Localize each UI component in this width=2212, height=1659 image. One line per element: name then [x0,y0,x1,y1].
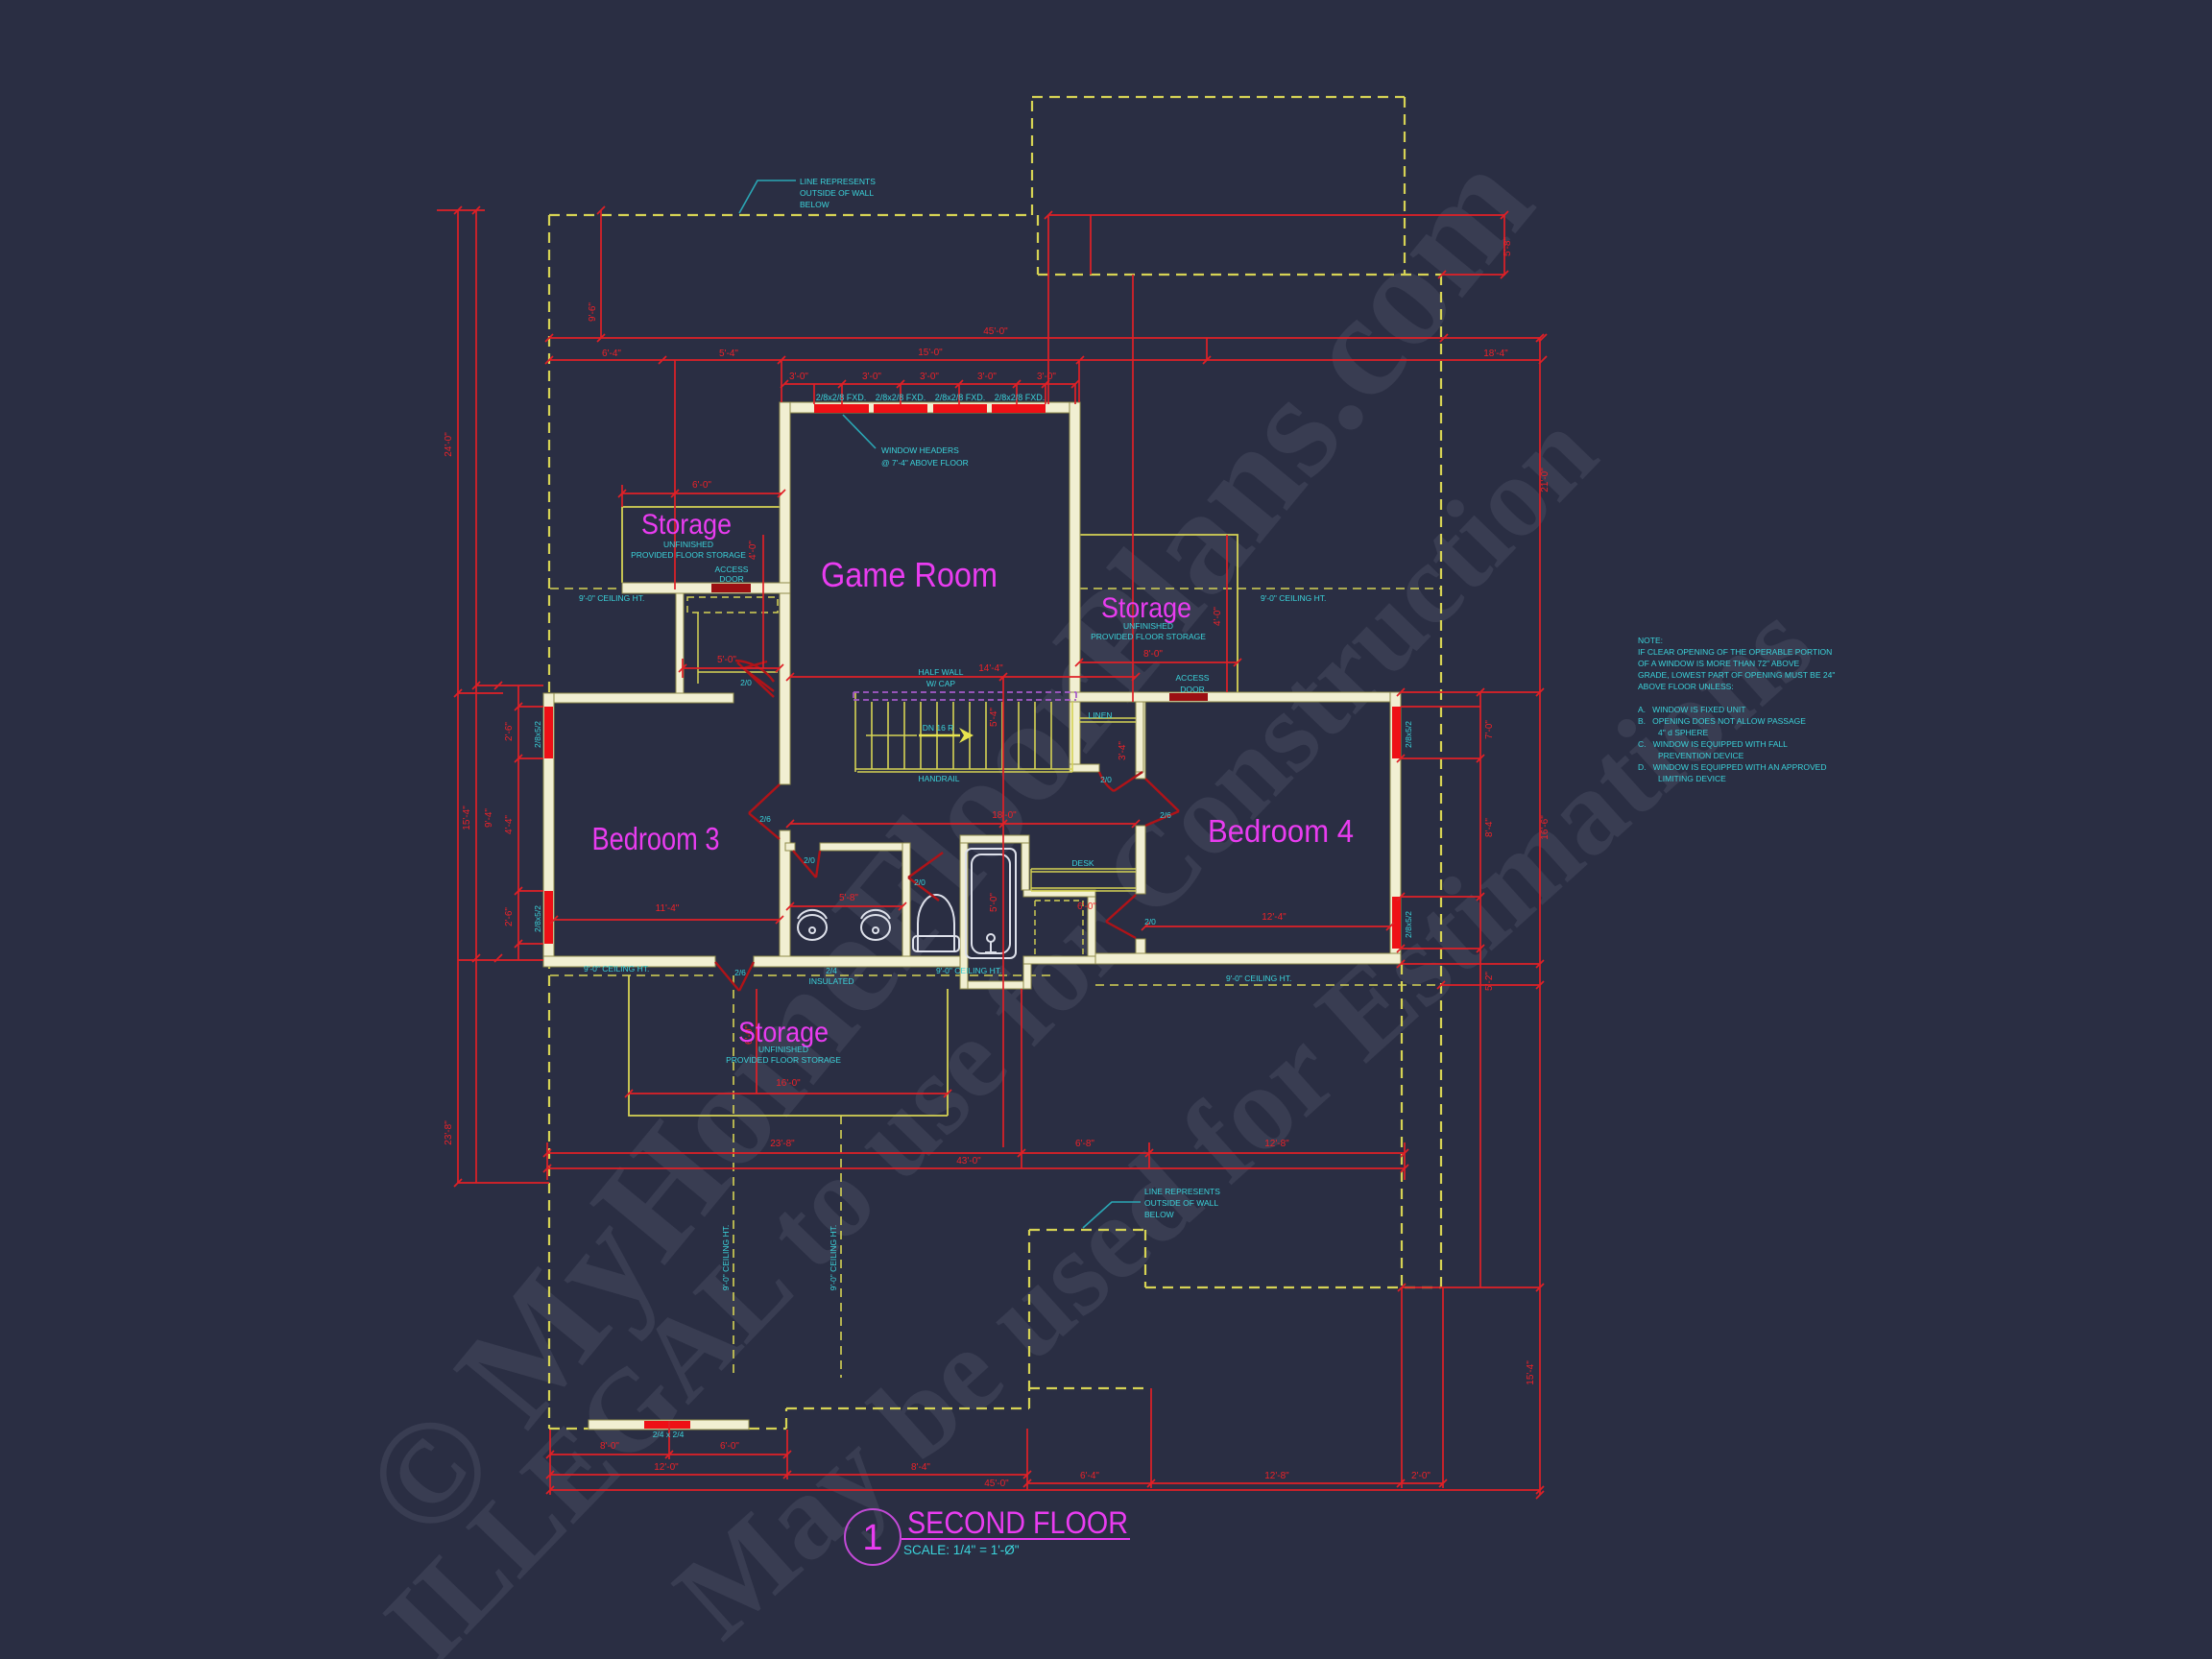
svg-text:BELOW: BELOW [800,200,829,209]
svg-text:PREVENTION DEVICE: PREVENTION DEVICE [1658,751,1744,760]
svg-text:Bedroom 3: Bedroom 3 [592,821,720,856]
svg-text:2'-6": 2'-6" [504,907,515,926]
svg-text:12'-8": 12'-8" [1264,1471,1289,1481]
svg-text:8'-4": 8'-4" [1484,818,1495,837]
svg-text:LINE REPRESENTS: LINE REPRESENTS [800,177,876,186]
svg-text:9'-0" CEILING HT.: 9'-0" CEILING HT. [936,966,1001,975]
svg-text:5'-2": 5'-2" [1484,972,1495,991]
svg-text:9'-6": 9'-6" [588,302,598,322]
svg-text:3'-0": 3'-0" [1037,372,1056,382]
svg-text:2/4: 2/4 [826,966,837,975]
svg-text:15'-0": 15'-0" [918,348,943,358]
svg-text:16'-0": 16'-0" [776,1078,801,1089]
svg-text:8'-0": 8'-0" [600,1441,619,1452]
svg-text:ACCESS: ACCESS [715,565,749,574]
svg-text:OUTSIDE OF WALL: OUTSIDE OF WALL [1144,1198,1218,1208]
svg-text:5'-0": 5'-0" [989,893,999,912]
svg-text:UNFINISHED: UNFINISHED [1123,621,1173,631]
svg-text:IF CLEAR OPENING OF THE OPERAB: IF CLEAR OPENING OF THE OPERABLE PORTION [1638,647,1832,657]
svg-text:2'-0": 2'-0" [1411,1471,1431,1481]
svg-text:8'-0": 8'-0" [1143,649,1163,660]
svg-text:6'-4": 6'-4" [1080,1471,1099,1481]
svg-text:UNFINISHED: UNFINISHED [663,540,713,549]
svg-text:3'-4": 3'-4" [1118,741,1128,760]
svg-text:2/0: 2/0 [1100,775,1112,784]
svg-text:2/8x2/8 FXD.: 2/8x2/8 FXD. [876,393,926,402]
svg-text:B. OPENING DOES NOT ALLOW PA: B. OPENING DOES NOT ALLOW PASSAGE [1638,716,1806,726]
svg-text:OF A WINDOW IS MORE THAN 72" A: OF A WINDOW IS MORE THAN 72" ABOVE [1638,659,1800,668]
svg-text:2'-6": 2'-6" [504,722,515,741]
svg-text:3'-0": 3'-0" [920,372,939,382]
svg-text:7'-0": 7'-0" [1484,720,1495,739]
svg-text:NOTE:: NOTE: [1638,636,1663,645]
svg-text:6'-4": 6'-4" [602,349,621,359]
svg-text:BELOW: BELOW [1144,1210,1174,1219]
svg-text:LIMITING DEVICE: LIMITING DEVICE [1658,774,1726,783]
svg-text:14'-4": 14'-4" [978,663,1003,674]
svg-text:11'-4": 11'-4" [656,903,680,914]
svg-text:5'-8": 5'-8" [839,893,858,903]
svg-text:2/8x2/8 FXD.: 2/8x2/8 FXD. [935,393,986,402]
svg-text:4'-0": 4'-0" [1213,607,1223,626]
svg-text:Game Room: Game Room [821,555,998,594]
svg-text:6'-0": 6'-0" [1077,902,1096,912]
svg-text:15'-4": 15'-4" [1526,1360,1536,1385]
svg-text:ABOVE FLOOR UNLESS:: ABOVE FLOOR UNLESS: [1638,682,1734,691]
svg-text:HANDRAIL: HANDRAIL [919,774,960,783]
svg-text:SECOND FLOOR: SECOND FLOOR [907,1505,1128,1540]
svg-text:Storage: Storage [1101,592,1191,624]
svg-text:5'-4": 5'-4" [989,708,999,727]
svg-text:18'-0": 18'-0" [992,810,1017,821]
svg-text:5'-8": 5'-8" [1503,237,1513,256]
svg-text:6'-0": 6'-0" [720,1441,739,1452]
svg-text:PROVIDED FLOOR STORAGE: PROVIDED FLOOR STORAGE [631,550,746,560]
svg-text:2/6: 2/6 [1160,810,1171,820]
svg-text:4'-0": 4'-0" [748,541,758,560]
svg-text:2/6: 2/6 [759,814,771,824]
svg-text:D. WINDOW IS EQUIPPED WITH A: D. WINDOW IS EQUIPPED WITH AN APPROVED [1638,762,1826,772]
svg-text:9'-4": 9'-4" [484,808,494,828]
svg-text:DESK: DESK [1071,858,1094,868]
svg-text:PROVIDED FLOOR STORAGE: PROVIDED FLOOR STORAGE [1091,632,1206,641]
svg-text:4" d SPHERE: 4" d SPHERE [1658,728,1708,737]
svg-text:8'-4": 8'-4" [911,1462,930,1473]
svg-text:PROVIDED FLOOR STORAGE: PROVIDED FLOOR STORAGE [726,1055,841,1065]
svg-text:5'-4": 5'-4" [719,349,738,359]
svg-text:DN 16 R: DN 16 R [923,723,954,733]
svg-text:9'-0" CEILING HT.: 9'-0" CEILING HT. [584,964,649,974]
svg-text:18'-4": 18'-4" [1483,349,1508,359]
svg-text:12'-8": 12'-8" [1264,1139,1289,1149]
svg-text:Bedroom 4: Bedroom 4 [1208,813,1354,849]
svg-text:3'-0": 3'-0" [977,372,997,382]
svg-text:9'-0" CEILING HT.: 9'-0" CEILING HT. [1226,974,1291,983]
svg-text:1: 1 [862,1518,882,1558]
svg-text:2/8x5/2: 2/8x5/2 [1404,911,1413,938]
svg-text:6'-0": 6'-0" [692,480,711,491]
svg-text:24'-0": 24'-0" [444,432,454,457]
svg-text:SCALE: 1/4" = 1'-Ø": SCALE: 1/4" = 1'-Ø" [903,1543,1020,1557]
svg-text:2/8x5/2: 2/8x5/2 [533,905,542,932]
svg-text:2/8x5/2: 2/8x5/2 [1404,721,1413,748]
svg-text:2/4 x 2/4: 2/4 x 2/4 [653,1430,685,1439]
svg-text:45'-0": 45'-0" [984,1479,1009,1489]
svg-text:9'-0" CEILING HT.: 9'-0" CEILING HT. [1261,593,1326,603]
svg-text:23'-8": 23'-8" [444,1120,454,1145]
svg-text:WINDOW HEADERS: WINDOW HEADERS [881,445,959,455]
svg-text:C. WINDOW IS EQUIPPED WITH F: C. WINDOW IS EQUIPPED WITH FALL [1638,739,1788,749]
svg-text:OUTSIDE OF WALL: OUTSIDE OF WALL [800,188,874,198]
svg-text:Storage: Storage [641,509,732,541]
svg-text:2/0: 2/0 [804,855,815,865]
svg-text:5'-0": 5'-0" [717,655,736,665]
svg-text:DOOR: DOOR [719,574,744,584]
svg-text:9'-0" CEILING HT.: 9'-0" CEILING HT. [829,1225,838,1290]
svg-text:15'-4": 15'-4" [462,805,472,830]
svg-text:DOOR: DOOR [1180,685,1205,694]
svg-text:9'-0" CEILING HT.: 9'-0" CEILING HT. [579,593,644,603]
svg-text:4'-4": 4'-4" [504,815,515,834]
svg-text:9'-0" CEILING HT.: 9'-0" CEILING HT. [721,1225,731,1290]
svg-text:GRADE, LOWEST PART OF OPENING: GRADE, LOWEST PART OF OPENING MUST BE 24… [1638,670,1835,680]
svg-text:23'-8": 23'-8" [770,1139,795,1149]
svg-text:2/0: 2/0 [740,678,752,687]
svg-text:12'-0": 12'-0" [654,1462,679,1473]
svg-text:2/6: 2/6 [734,968,746,977]
svg-text:LINE REPRESENTS: LINE REPRESENTS [1144,1187,1220,1196]
svg-text:2/8x5/2: 2/8x5/2 [533,721,542,748]
svg-text:UNFINISHED: UNFINISHED [758,1045,808,1054]
svg-text:45'-0": 45'-0" [983,326,1008,337]
svg-text:12'-4": 12'-4" [1262,912,1286,923]
svg-text:43'-0": 43'-0" [956,1156,981,1166]
svg-text:2/8x2/8 FXD.: 2/8x2/8 FXD. [816,393,867,402]
svg-text:2/8x2/8 FXD.: 2/8x2/8 FXD. [995,393,1046,402]
svg-text:16'-6": 16'-6" [1540,815,1551,840]
svg-text:6'-8": 6'-8" [1075,1139,1094,1149]
svg-text:A. WINDOW IS FIXED UNIT: A. WINDOW IS FIXED UNIT [1638,705,1745,714]
svg-text:W/ CAP: W/ CAP [926,679,956,688]
svg-text:HALF WALL: HALF WALL [919,667,964,677]
svg-text:ACCESS: ACCESS [1176,673,1210,683]
svg-text:3'-0": 3'-0" [789,372,808,382]
svg-text:21'-0": 21'-0" [1540,468,1551,493]
svg-text:@ 7'-4" ABOVE FLOOR: @ 7'-4" ABOVE FLOOR [881,458,969,468]
svg-text:INSULATED: INSULATED [808,976,854,986]
svg-text:2/0: 2/0 [1144,917,1156,926]
svg-text:2/0: 2/0 [914,878,926,887]
svg-text:3'-0": 3'-0" [862,372,881,382]
svg-text:LINEN: LINEN [1088,710,1112,720]
